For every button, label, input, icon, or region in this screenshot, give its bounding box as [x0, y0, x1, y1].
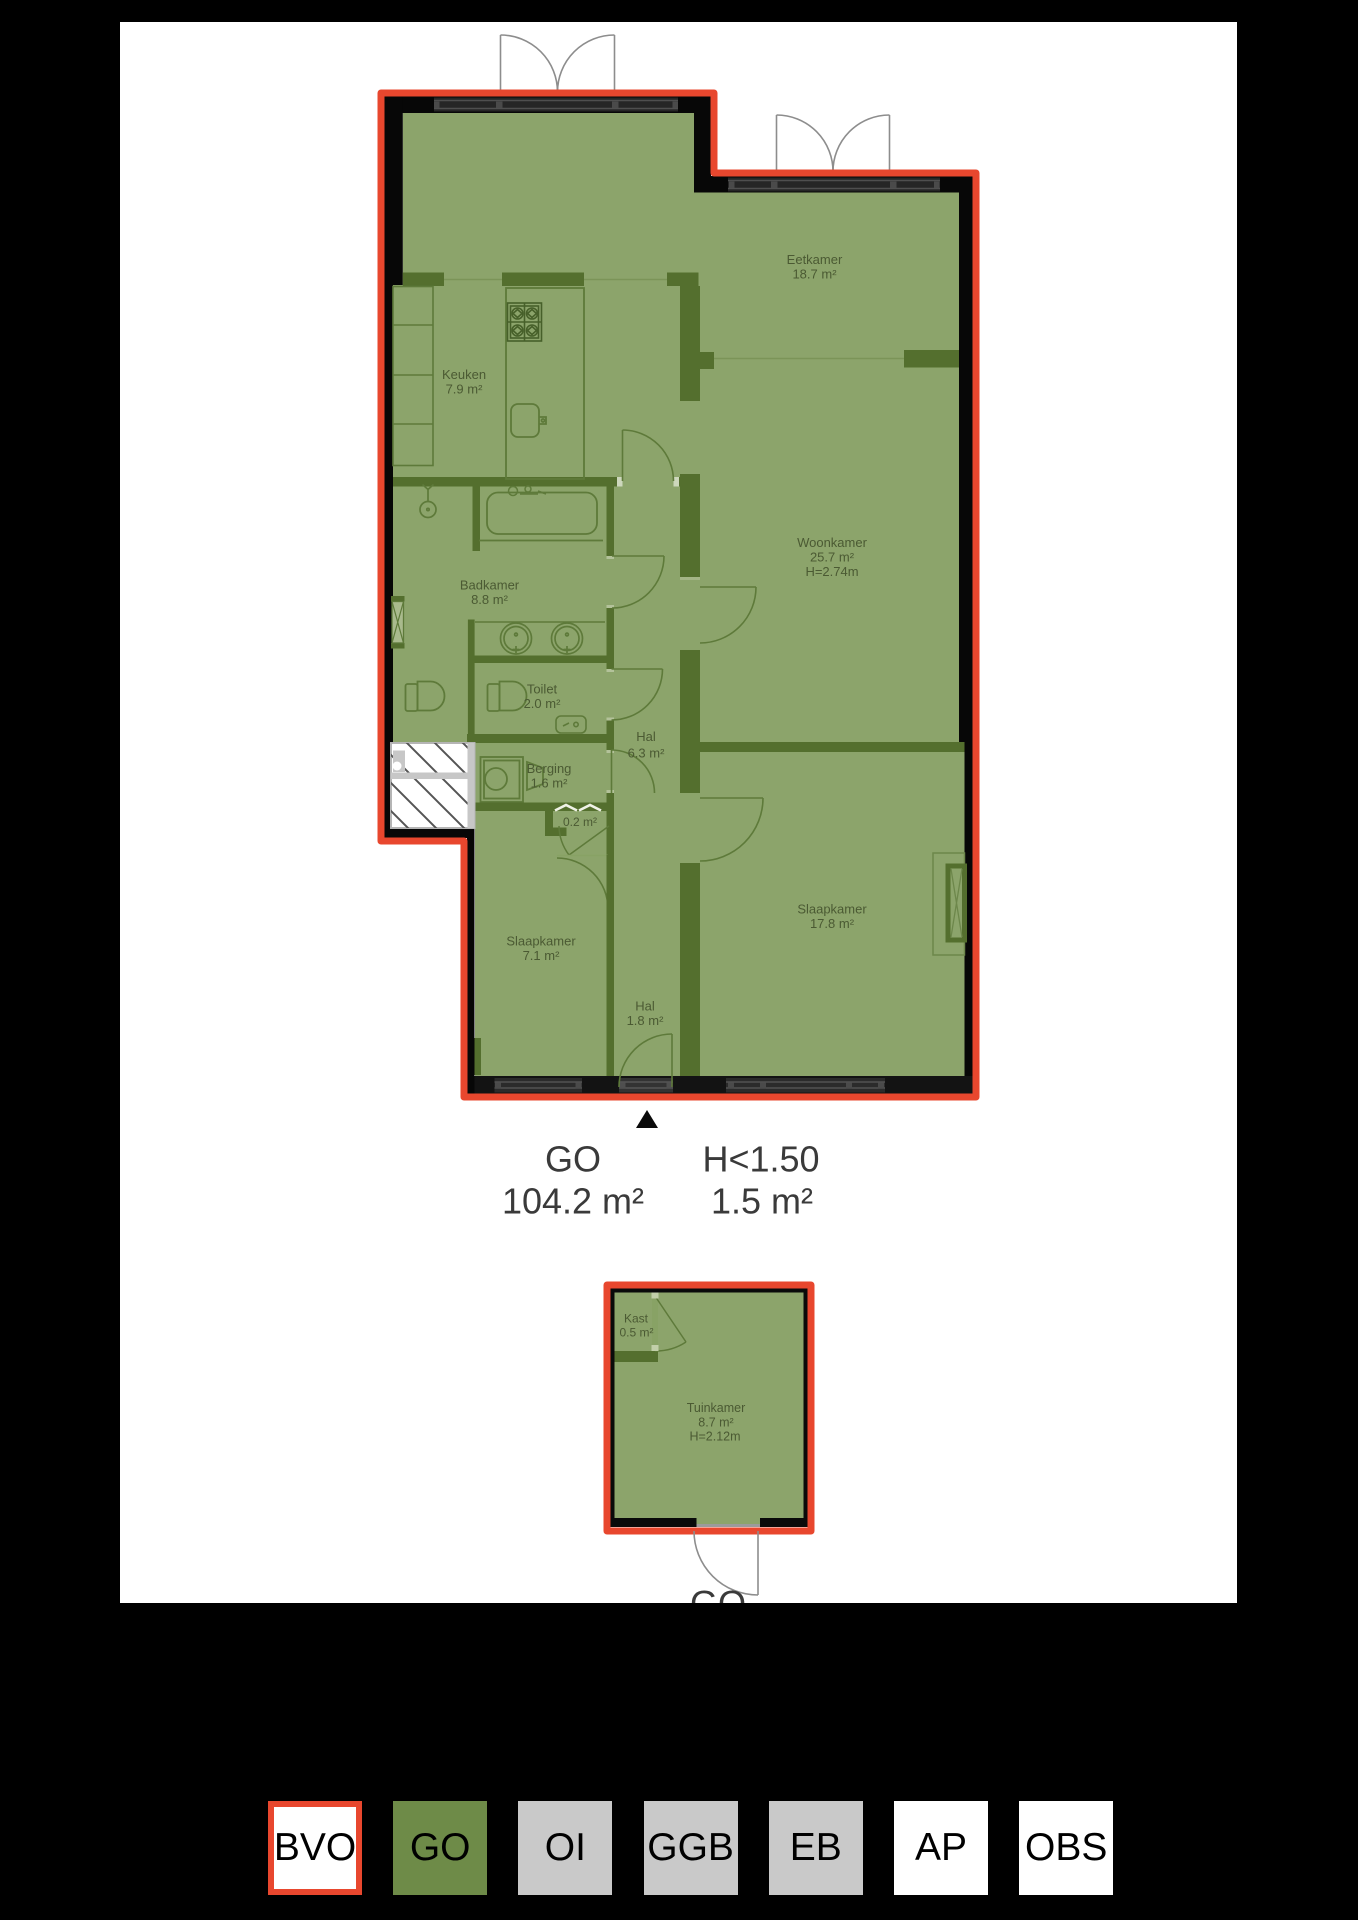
svg-text:Kast: Kast — [624, 1312, 649, 1326]
svg-text:25.7 m²: 25.7 m² — [810, 550, 855, 565]
svg-text:Badkamer: Badkamer — [460, 578, 520, 593]
svg-text:18.7 m²: 18.7 m² — [792, 267, 837, 282]
svg-text:H=2.12m: H=2.12m — [689, 1430, 740, 1444]
svg-text:1.5 m²: 1.5 m² — [711, 1181, 813, 1222]
svg-text:1.6 m²: 1.6 m² — [531, 776, 569, 791]
svg-text:2.0 m²: 2.0 m² — [524, 696, 562, 711]
svg-text:GO: GO — [690, 1583, 746, 1603]
svg-text:H=2.74m: H=2.74m — [805, 564, 858, 579]
svg-text:8.7 m²: 8.7 m² — [698, 1416, 733, 1430]
svg-text:0.5 m²: 0.5 m² — [619, 1326, 653, 1340]
svg-text:Tuinkamer: Tuinkamer — [687, 1401, 746, 1415]
svg-text:GO: GO — [545, 1139, 601, 1180]
svg-text:H<1.50: H<1.50 — [702, 1139, 819, 1180]
svg-text:8.8 m²: 8.8 m² — [471, 592, 509, 607]
svg-text:Keuken: Keuken — [442, 367, 486, 382]
svg-text:0.2 m²: 0.2 m² — [563, 815, 597, 829]
svg-text:7.9 m²: 7.9 m² — [446, 382, 484, 397]
svg-text:Toilet: Toilet — [527, 682, 558, 697]
svg-text:Slaapkamer: Slaapkamer — [797, 902, 867, 917]
svg-text:6.3 m²: 6.3 m² — [628, 746, 666, 761]
svg-text:17.8 m²: 17.8 m² — [810, 916, 855, 931]
svg-text:Hal: Hal — [635, 999, 655, 1014]
svg-text:Woonkamer: Woonkamer — [797, 535, 868, 550]
svg-text:104.2 m²: 104.2 m² — [502, 1181, 644, 1222]
svg-text:1.8 m²: 1.8 m² — [627, 1013, 665, 1028]
svg-text:Berging: Berging — [527, 761, 572, 776]
svg-text:Slaapkamer: Slaapkamer — [506, 934, 576, 949]
svg-text:7.1 m²: 7.1 m² — [523, 948, 561, 963]
svg-text:Hal: Hal — [636, 729, 656, 744]
svg-text:Eetkamer: Eetkamer — [787, 252, 843, 267]
